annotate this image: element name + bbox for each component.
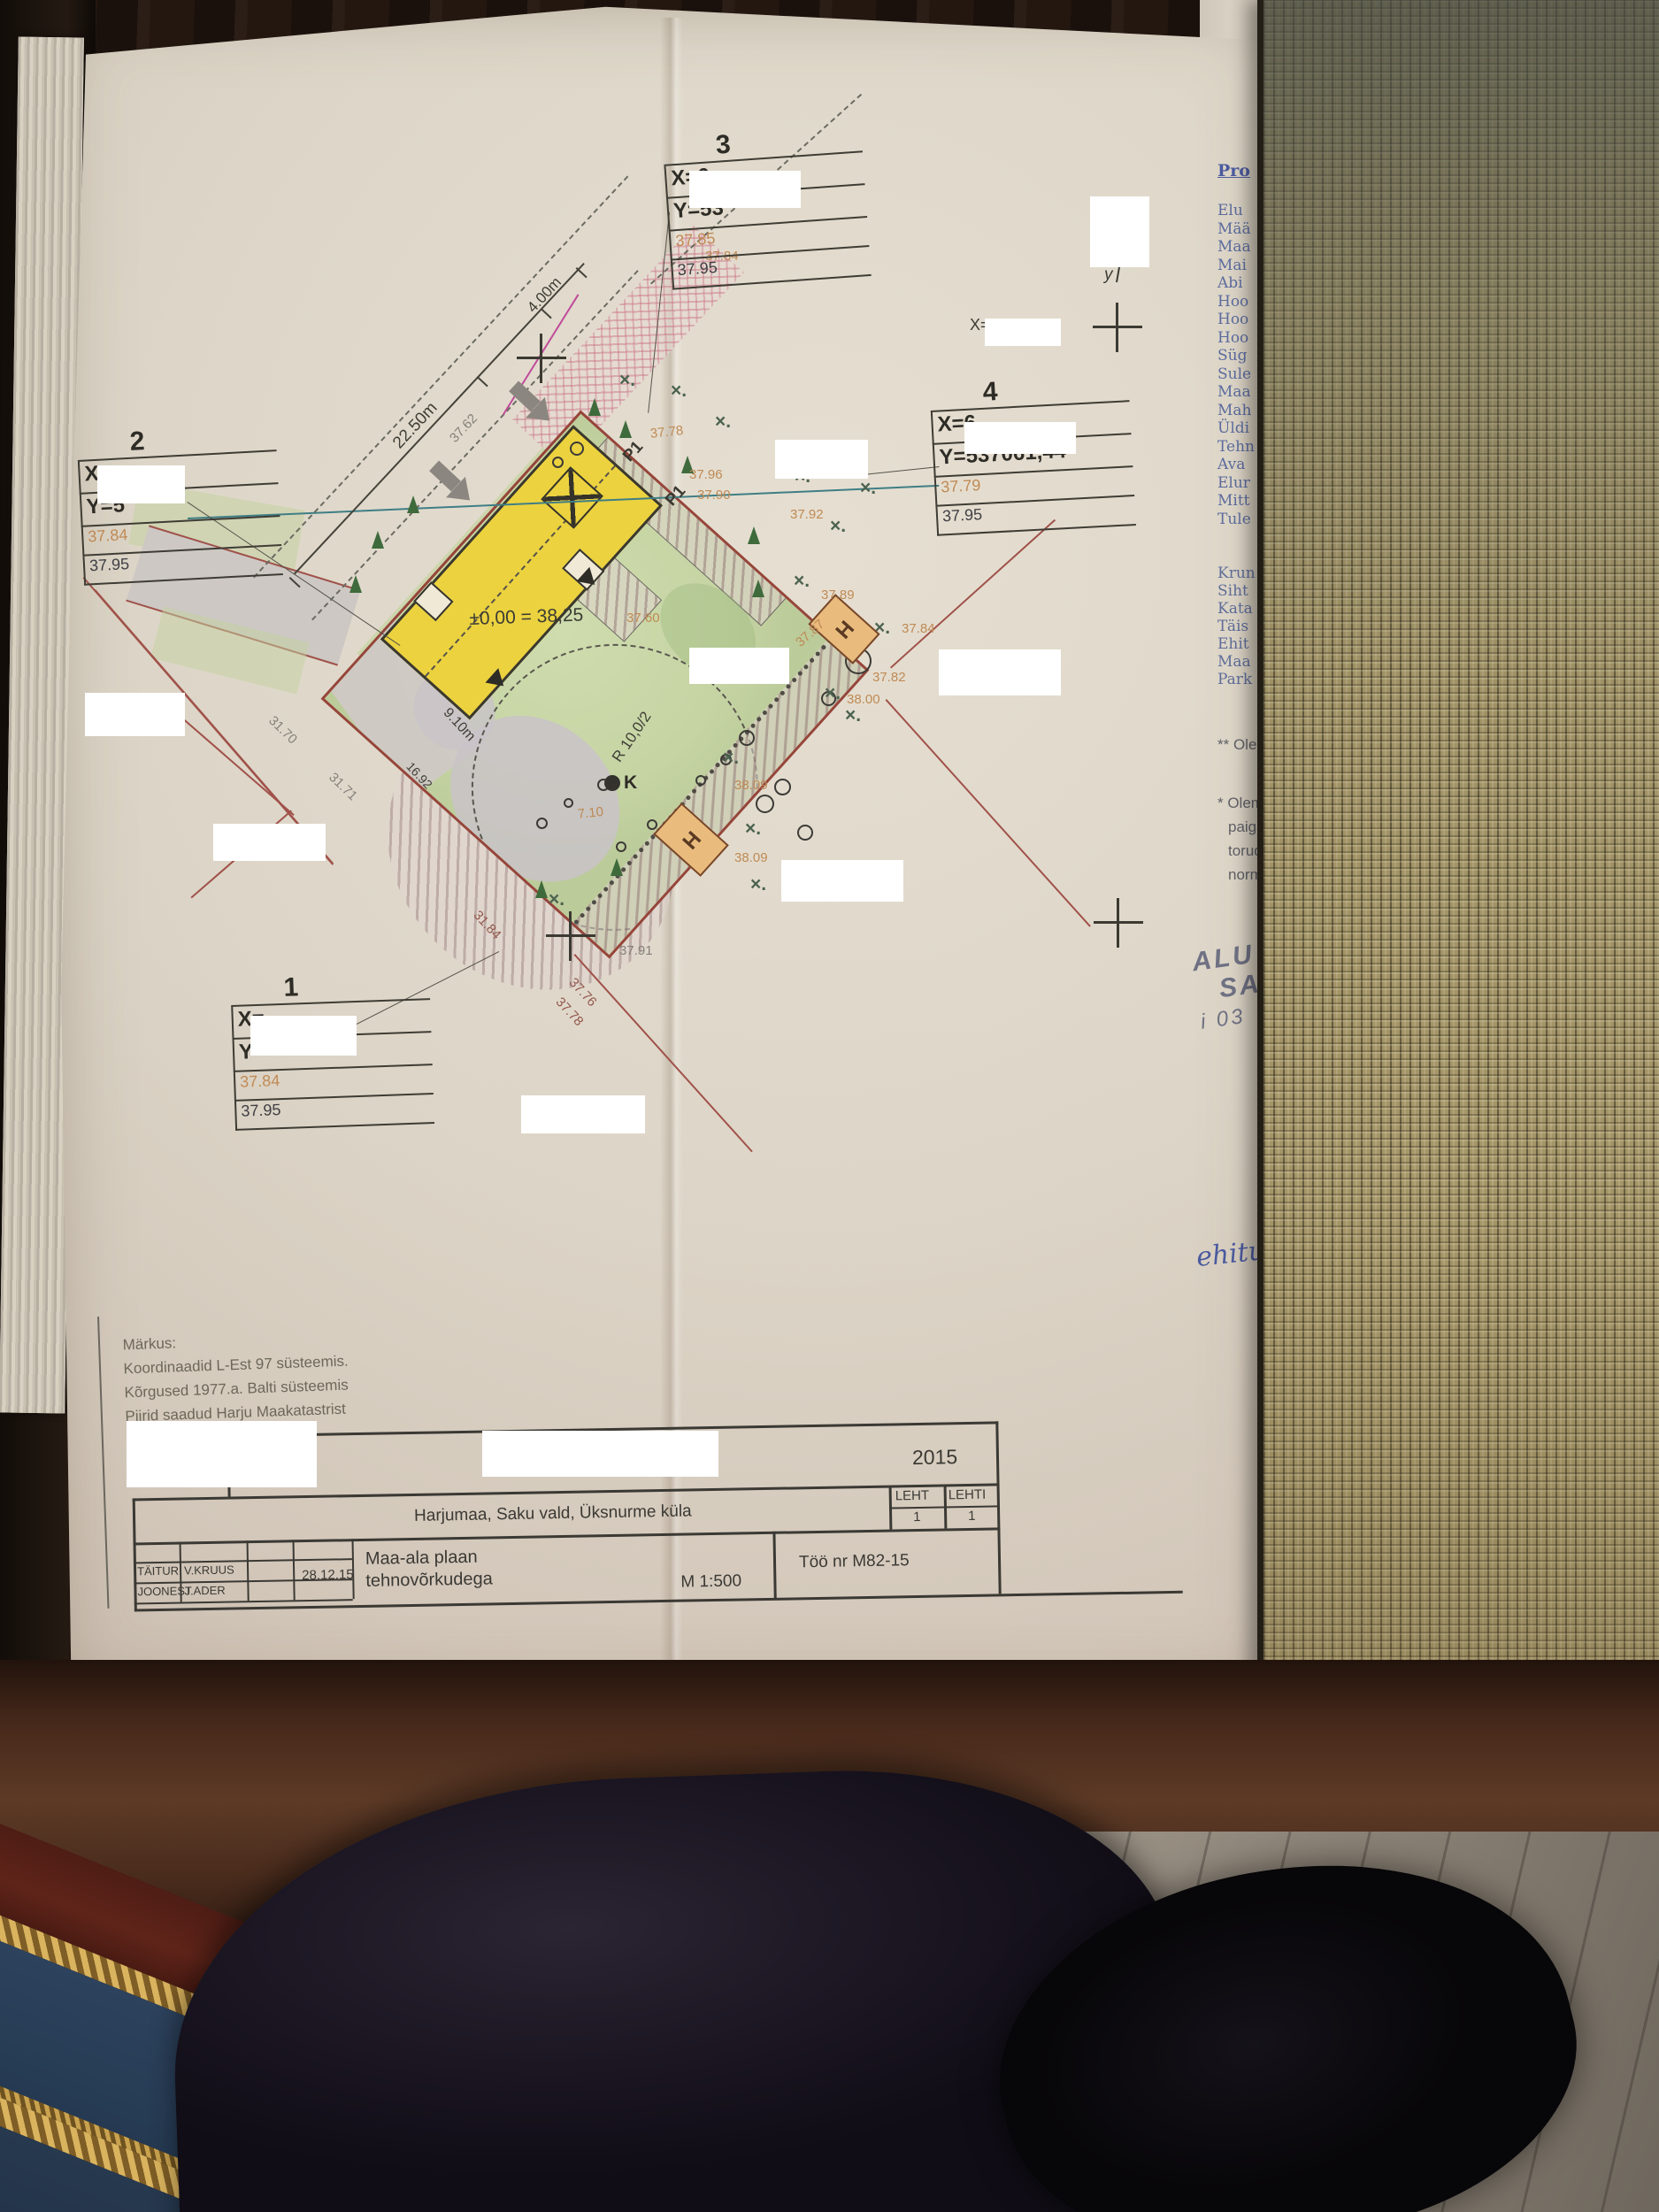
manhole-circle [564,798,573,808]
margin-text-line: Hoo [1217,293,1248,311]
h-label: H [830,615,858,643]
spot-height: 37.90 [697,488,731,503]
margin-text-line: Mah [1217,402,1252,419]
margin-text-line: Park [1217,671,1252,688]
spot-height: 37.89 [821,588,855,603]
redaction-box [97,465,185,503]
photo-of-site-plan: H H P1 P1 K ±0,00 = 38,25 X= y Märkus: K… [0,0,1659,2212]
margin-text-line: Maa [1217,238,1251,256]
redaction-box [1090,196,1149,267]
x-mark-icon: ×. [715,411,731,433]
manhole-circle [647,819,657,830]
grid-cross-icon [1094,898,1143,948]
redaction-box [775,440,868,479]
x-mark-icon: ×. [794,571,810,592]
tblock-line [134,1527,1001,1545]
tree-icon [588,398,601,416]
work-number: Töö nr M82-15 [799,1551,910,1572]
entrance-triangle [485,668,510,693]
spot-height: 7.10 [577,804,604,822]
manhole-circle [552,457,564,468]
manhole-circle [570,442,584,456]
margin-text-line: Ehit [1217,635,1249,653]
margin-text-line: Üldi [1217,419,1249,437]
tblock-line [772,1532,776,1600]
tree-icon [372,531,384,549]
name1: V.KRUUS [184,1563,234,1577]
margin-text-line: Mai [1217,257,1247,274]
x-mark-icon: ×. [825,683,841,704]
tree-icon [407,495,419,513]
spot-height: 38.09 [734,778,768,793]
spot-height: 37.92 [790,507,824,522]
manhole-circle [797,825,813,841]
margin-text-line: Elu [1217,202,1243,219]
margin-text-line: Süg [1217,347,1247,365]
ink-stamp: ALU SA i 03 [1190,939,1267,1037]
margin-text-line: Siht [1217,582,1248,600]
manhole-circle [739,730,755,746]
margin-text-line: Kata [1217,600,1253,618]
tblock-line [134,1599,353,1604]
location: Harjumaa, Saku vald, Üksnurme küla [414,1502,692,1525]
margin-text-line: Täis [1217,618,1248,635]
margin-text-line: Mää [1217,220,1251,238]
spot-height: 37.82 [872,670,906,685]
notes-block: Märkus: Koordinaadid L-Est 97 süsteemis.… [122,1325,350,1429]
redaction-box [781,860,903,902]
role1: TÄITUR [137,1564,179,1578]
spot-height: 37.60 [626,611,660,626]
x-mark-icon: ×. [723,748,739,769]
margin-text-line: Mitt [1217,492,1250,510]
margin-text-line: Maa [1217,383,1251,401]
manhole-circle [774,779,791,795]
leht-value: 1 [913,1509,921,1525]
well-point [604,775,620,791]
leht-header: LEHT [895,1488,930,1504]
x-mark-icon: ×. [860,478,876,499]
margin-text-line: Krun [1217,565,1256,582]
margin-text-line: Elur [1217,474,1250,492]
x-mark-icon: ×. [830,516,846,537]
manhole-circle [695,775,706,786]
spot-height: 37.96 [689,467,723,482]
x-mark-icon: ×. [745,818,761,840]
x-mark-icon: ×. [619,370,635,391]
name2: J.ADER [184,1584,225,1598]
tree-icon [748,526,760,544]
spot-height: 37.84 [902,621,935,636]
margin-text-line: Sule [1217,365,1251,383]
x-mark-icon: ×. [845,705,861,726]
redaction-box [689,171,801,208]
redaction-box [250,1016,357,1056]
grid-cross-icon [546,911,595,961]
spot-height: 37.91 [619,943,653,958]
margin-text-line: Tehn [1217,438,1255,456]
margin-text-line: Pro [1217,161,1250,180]
spot-height: 38.00 [847,692,880,707]
margin-text-line: Ava [1217,456,1245,473]
scale: M 1:500 [680,1571,741,1592]
margin-text-line: Abi [1217,274,1243,292]
manhole-circle [616,841,626,852]
spot-height: 38.09 [734,850,768,865]
manhole-circle [756,795,774,813]
x-mark-icon: ×. [750,874,766,895]
redaction-box [213,824,326,861]
margin-text-line: Maa [1217,653,1251,671]
shaft-x-box [541,466,603,529]
tree-icon [535,880,548,898]
drawing-title-2: tehnovõrkudega [365,1569,493,1592]
grid-cross-icon [517,334,566,383]
redaction-box [689,648,789,684]
manhole-circle [536,818,548,829]
tree-icon [349,575,362,593]
drawing-title-1: Maa-ala plaan [365,1548,478,1570]
grid-cross-icon [1093,303,1142,352]
x-mark-icon: ×. [671,380,687,402]
year: 2015 [912,1445,958,1470]
well-label: K [624,772,637,794]
redaction-box [964,422,1076,454]
redaction-box [521,1095,645,1133]
h-label: H [677,826,705,854]
lehti-header: LEHTI [949,1487,987,1503]
tree-icon [752,580,764,597]
redaction-box [127,1421,317,1487]
redaction-box [482,1431,718,1477]
x-mark-icon: ×. [549,889,565,910]
tblock-line [995,1421,1001,1594]
margin-text-line: Hoo [1217,329,1248,347]
tree-icon [611,858,623,876]
tblock-line [247,1540,250,1601]
margin-text-line: Hoo [1217,311,1248,328]
tree-icon [619,420,632,438]
tblock-line [134,1558,352,1563]
margin-text-line: Tule [1217,511,1251,528]
lehti-value: 1 [968,1509,976,1524]
date: 28.12.15 [302,1567,354,1583]
redaction-box [85,693,185,736]
building-level: ±0,00 = 38,25 [469,605,584,630]
tblock-line [293,1540,296,1600]
redaction-box [939,649,1061,695]
entrance-notch [413,581,453,621]
woven-placemat [1257,0,1659,1683]
y-axis-label: y [1104,265,1113,285]
redaction-box [985,319,1061,346]
